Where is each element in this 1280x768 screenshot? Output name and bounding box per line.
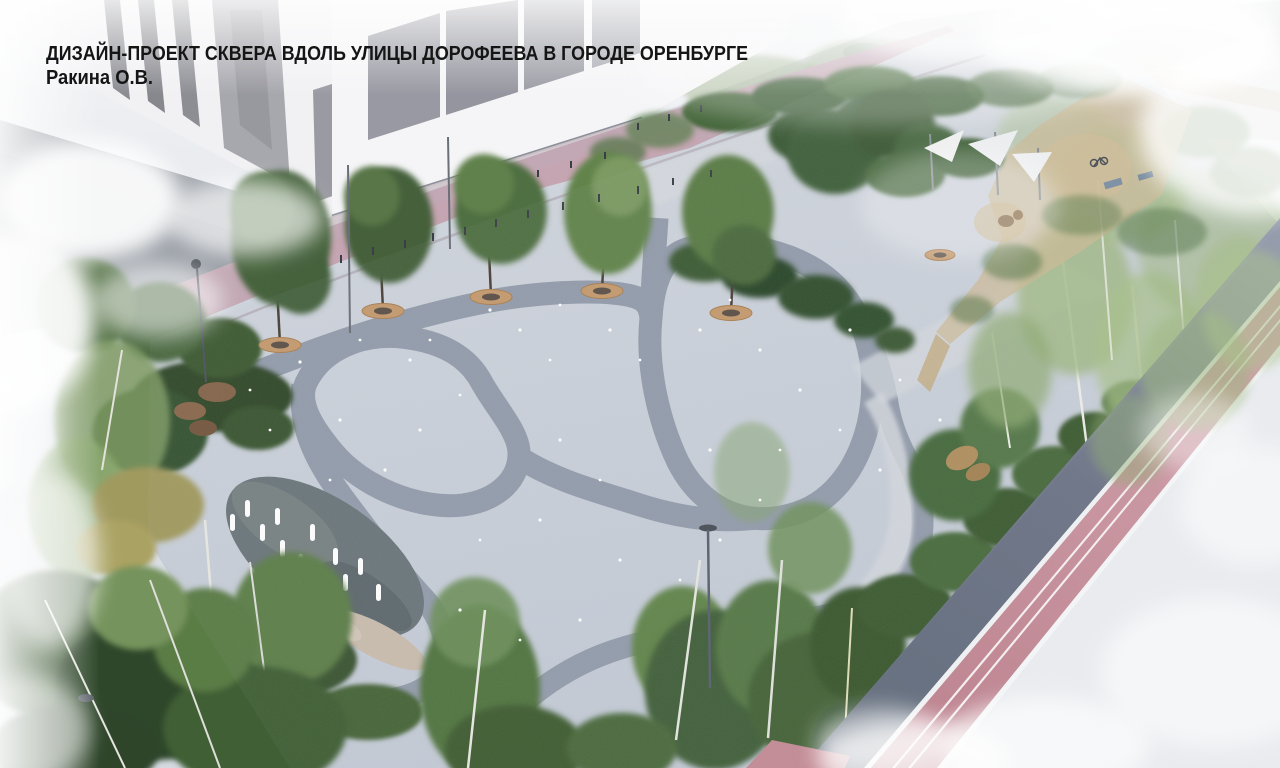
- svg-text:Ракина О.В.: Ракина О.В.: [46, 66, 153, 89]
- svg-text:ДИЗАЙН-ПРОЕКТ СКВЕРА ВДОЛЬ УЛИ: ДИЗАЙН-ПРОЕКТ СКВЕРА ВДОЛЬ УЛИЦЫ ДОРОФЕЕ…: [46, 41, 748, 65]
